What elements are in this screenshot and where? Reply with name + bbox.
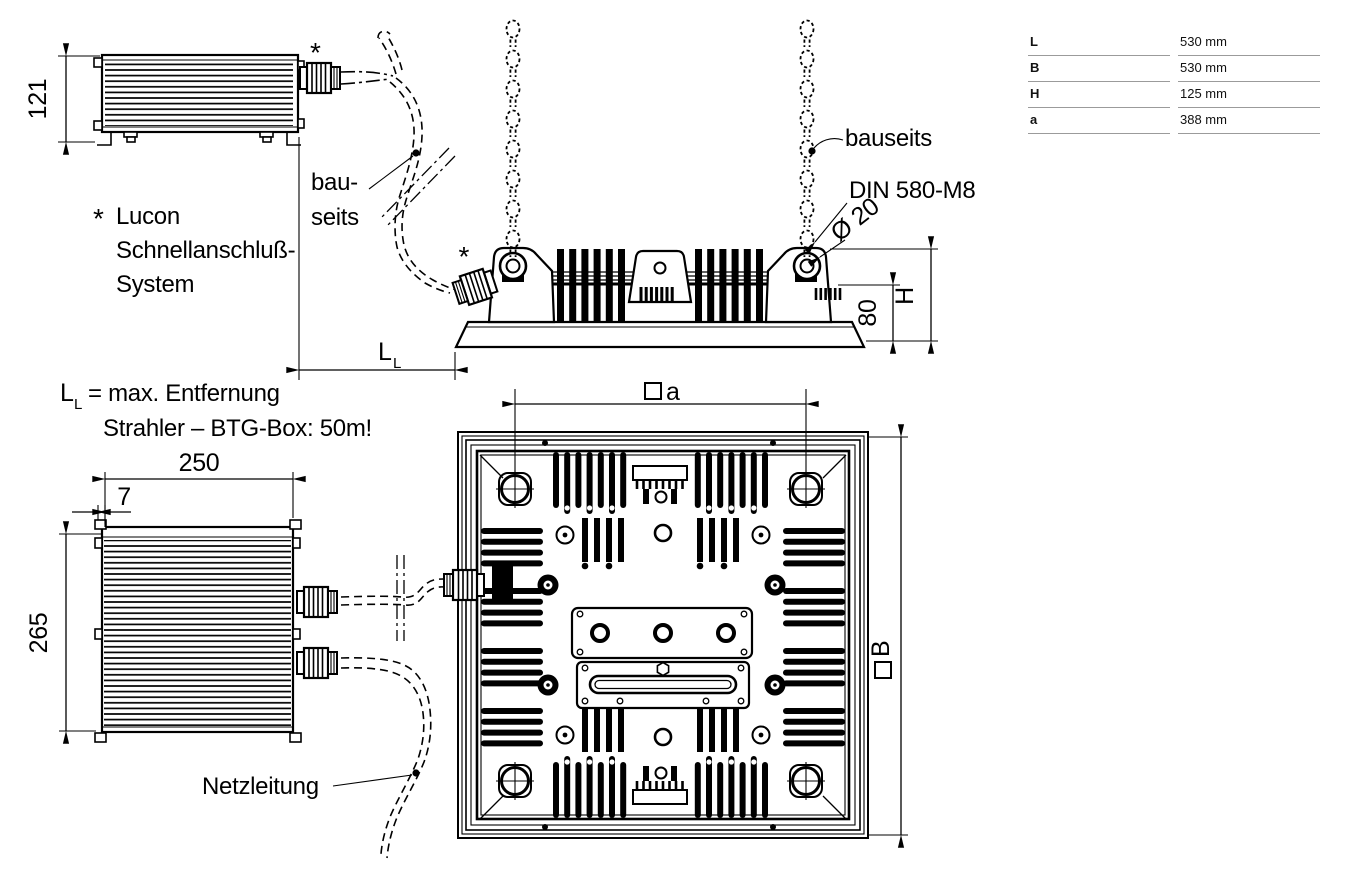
chain-left <box>507 21 520 258</box>
supply-cable <box>341 31 457 293</box>
dim-265-text: 265 <box>25 613 53 654</box>
cable-break-symbol <box>381 148 455 226</box>
spec-row-value: 530 mm <box>1178 30 1320 56</box>
spec-table: L 530 mm B 530 mm H 125 mm a 388 mm <box>1028 30 1320 134</box>
ll-note-line2: Strahler – BTG-Box: 50m! <box>103 415 372 442</box>
interconnect-cable <box>341 555 445 641</box>
dim-121: 121 <box>24 56 100 142</box>
bauseits-text: bauseits <box>845 125 932 152</box>
technical-drawing-page: * 121 * Lucon Schnellanschluß- System ba… <box>0 0 1345 878</box>
hex-nut <box>657 663 668 676</box>
lucon-note: * Lucon Schnellanschluß- System <box>93 203 295 298</box>
btg-box-front-view <box>95 520 337 742</box>
spec-row-label: B <box>1028 56 1170 82</box>
bau-line1: bau- <box>311 169 358 196</box>
bau-line2: seits <box>311 204 359 231</box>
asterisk-marker: * <box>310 37 321 68</box>
square-symbol <box>645 383 661 399</box>
central-plates <box>538 466 786 804</box>
spec-row-label: a <box>1028 108 1170 134</box>
dim-7-text: 7 <box>117 483 131 511</box>
lucon-line2: Schnellanschluß- <box>116 237 295 264</box>
dim-121-text: 121 <box>24 79 52 120</box>
dim-a-text: a <box>666 378 680 406</box>
floodlight-top-view <box>444 432 868 838</box>
floodlight-side-view: * <box>451 241 864 347</box>
ll-dim-main: L <box>378 338 392 366</box>
lucon-line3: System <box>116 271 194 298</box>
ll-note-main: L <box>60 379 74 407</box>
spec-row-value: 530 mm <box>1178 56 1320 82</box>
quick-connector <box>297 648 337 678</box>
quick-connector <box>297 587 337 617</box>
leader-dot <box>808 147 815 154</box>
spec-row-label: H <box>1028 82 1170 108</box>
square-symbol <box>875 662 891 678</box>
dim-80-text: 80 <box>854 299 882 326</box>
bau-seits-label: bau- seits <box>311 169 359 231</box>
mounting-skirt-left <box>97 132 111 145</box>
chain-right <box>801 21 814 258</box>
center-bracket <box>629 251 691 302</box>
ll-note-sub: L <box>74 396 82 413</box>
lucon-line1: Lucon <box>116 203 180 230</box>
dim-h-text: H <box>891 287 919 305</box>
leader-dot <box>412 769 419 776</box>
asterisk-marker: * <box>93 203 104 234</box>
dim-250-text: 250 <box>179 449 220 477</box>
ll-note: L L = max. Entfernung Strahler – BTG-Box… <box>60 379 372 442</box>
connector-plate <box>492 566 513 603</box>
spec-row-value: 125 mm <box>1178 82 1320 108</box>
leader-dot <box>412 149 419 156</box>
ll-note-rest: = max. Entfernung <box>88 380 280 407</box>
eye-bolt-left <box>500 253 526 279</box>
dim-b-text: B <box>867 641 895 657</box>
eye-bolt-right <box>794 253 820 279</box>
dim-250: 250 <box>105 449 293 524</box>
quick-connector <box>444 570 484 600</box>
dim-b: B <box>867 437 908 835</box>
spec-row-value: 388 mm <box>1178 108 1320 134</box>
spec-row-label: L <box>1028 30 1170 56</box>
dim-265: 265 <box>25 534 101 731</box>
ll-dim-sub: L <box>393 355 401 372</box>
bauseits-label: bauseits <box>808 125 932 155</box>
netzleitung-text: Netzleitung <box>202 773 319 800</box>
cable-break-symbol <box>397 555 404 641</box>
asterisk-marker: * <box>459 241 470 272</box>
btg-box-side-view: * <box>94 37 340 145</box>
